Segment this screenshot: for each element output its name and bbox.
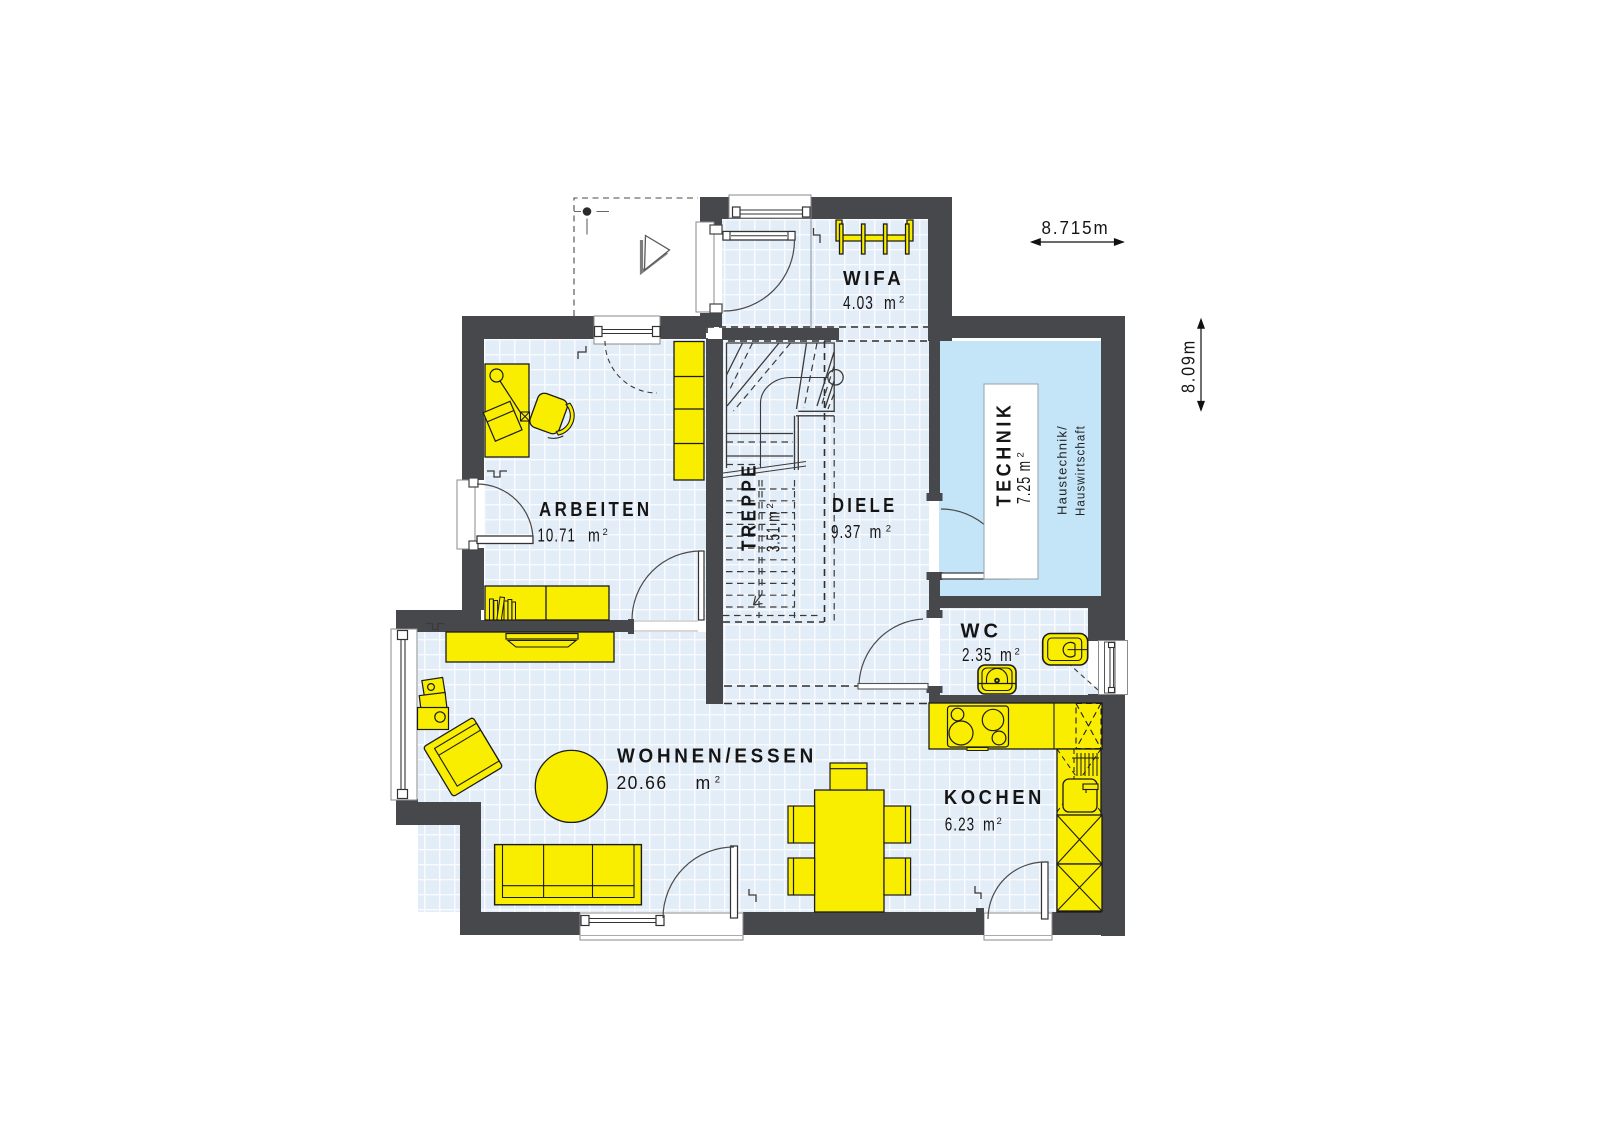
svg-text:4.03m2: 4.03m2 [843, 292, 904, 313]
svg-text:8.09m: 8.09m [1179, 339, 1199, 393]
svg-text:2.35m2: 2.35m2 [962, 644, 1020, 665]
svg-text:DIELE: DIELE [832, 495, 898, 517]
svg-text:KOCHEN: KOCHEN [944, 787, 1045, 809]
svg-text:6.23m2: 6.23m2 [945, 814, 1002, 835]
svg-text:ARBEITEN: ARBEITEN [539, 499, 653, 521]
svg-text:TREPPE: TREPPE [739, 462, 761, 551]
svg-text:8.715m: 8.715m [1042, 218, 1110, 238]
svg-text:WIFA: WIFA [843, 268, 905, 290]
svg-text:WOHNEN/ESSEN: WOHNEN/ESSEN [617, 746, 817, 768]
svg-text:Hauswirtschaft: Hauswirtschaft [1074, 425, 1088, 516]
svg-text:WC: WC [961, 620, 1003, 642]
svg-text:10.71m2: 10.71m2 [538, 525, 608, 546]
svg-text:Haustechnik/: Haustechnik/ [1056, 425, 1070, 515]
svg-text:9.37m2: 9.37m2 [831, 521, 891, 542]
